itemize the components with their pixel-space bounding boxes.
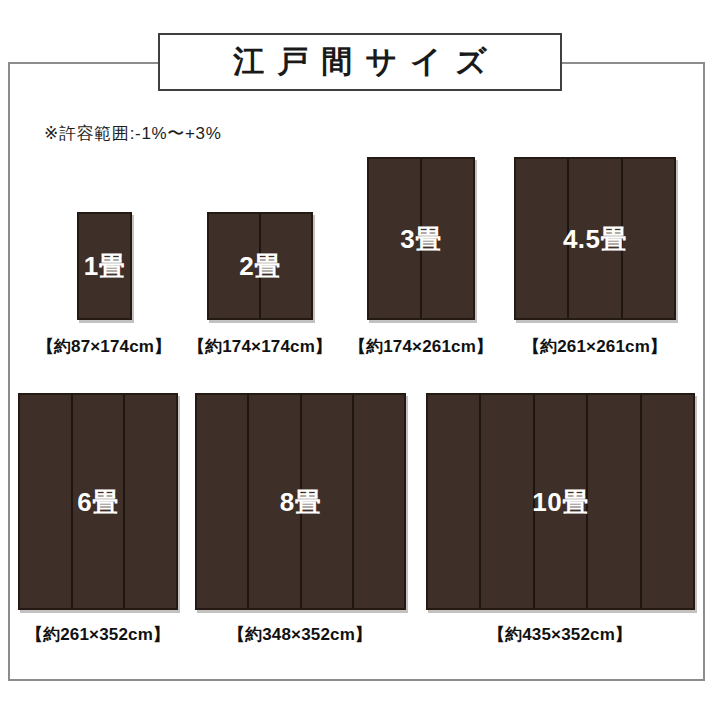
mat-dimension-label: 【約174×261cm】 <box>349 335 493 358</box>
mat-2jo: 2畳 <box>207 212 313 320</box>
mat-dimension-label: 【約435×352cm】 <box>488 623 632 646</box>
mat-8jo: 8畳 <box>195 393 406 610</box>
title-box: 江戸間サイズ <box>158 33 562 91</box>
page-title: 江戸間サイズ <box>220 41 499 83</box>
mat-label: 8畳 <box>280 484 322 519</box>
size-chart-page: 江戸間サイズ ※許容範囲:-1%〜+3% 1畳 2畳 3畳 4.5畳 【約87×… <box>0 0 713 713</box>
mat-label: 6畳 <box>77 484 119 519</box>
mat-dimension-label: 【約348×352cm】 <box>228 623 372 646</box>
mat-label: 1畳 <box>84 249 126 284</box>
mat-dimension-label: 【約174×174cm】 <box>188 335 332 358</box>
mat-4-5jo: 4.5畳 <box>514 157 676 320</box>
tolerance-note: ※許容範囲:-1%〜+3% <box>44 122 222 145</box>
mat-dimension-label: 【約261×352cm】 <box>26 623 170 646</box>
mat-3jo: 3畳 <box>367 157 475 320</box>
mat-10jo: 10畳 <box>426 393 695 610</box>
mat-label: 10畳 <box>532 484 588 519</box>
mat-dimension-label: 【約87×174cm】 <box>37 335 172 358</box>
mat-label: 3畳 <box>400 221 442 256</box>
mat-1jo: 1畳 <box>77 212 132 320</box>
mat-label: 2畳 <box>239 249 281 284</box>
mat-dimension-label: 【約261×261cm】 <box>523 335 667 358</box>
mat-6jo: 6畳 <box>18 393 178 610</box>
mat-label: 4.5畳 <box>563 221 627 256</box>
